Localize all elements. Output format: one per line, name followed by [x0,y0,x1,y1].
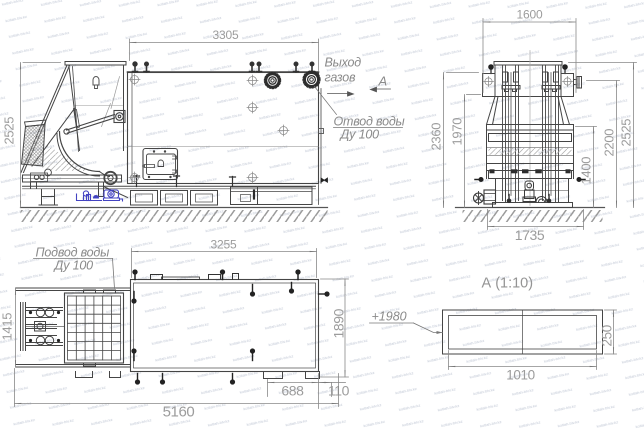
svg-text:3305: 3305 [213,28,239,42]
svg-text:2525: 2525 [619,119,634,147]
svg-text:1600: 1600 [517,8,543,22]
svg-text:Выход: Выход [325,56,362,70]
svg-text:газов: газов [325,71,357,85]
svg-text:2525: 2525 [2,117,17,145]
svg-text:+1980: +1980 [372,310,407,324]
svg-text:250: 250 [600,325,615,346]
svg-text:1890: 1890 [331,308,347,338]
svg-text:А: А [378,74,388,89]
svg-text:1735: 1735 [515,227,545,243]
svg-text:Отвод воды: Отвод воды [334,115,405,129]
svg-text:2360: 2360 [429,123,444,151]
svg-text:1970: 1970 [450,118,465,146]
svg-text:688: 688 [281,383,304,399]
svg-text:1400: 1400 [579,157,594,185]
svg-text:1415: 1415 [0,313,15,341]
svg-text:1010: 1010 [506,368,534,383]
svg-text:Ду 100: Ду 100 [339,128,380,142]
svg-text:Подвод воды: Подвод воды [36,246,110,260]
svg-text:3255: 3255 [211,238,237,252]
svg-text:А (1:10): А (1:10) [482,276,534,292]
svg-text:2200: 2200 [602,129,617,157]
svg-text:Ду 100: Ду 100 [53,259,94,273]
svg-text:5160: 5160 [163,404,195,421]
